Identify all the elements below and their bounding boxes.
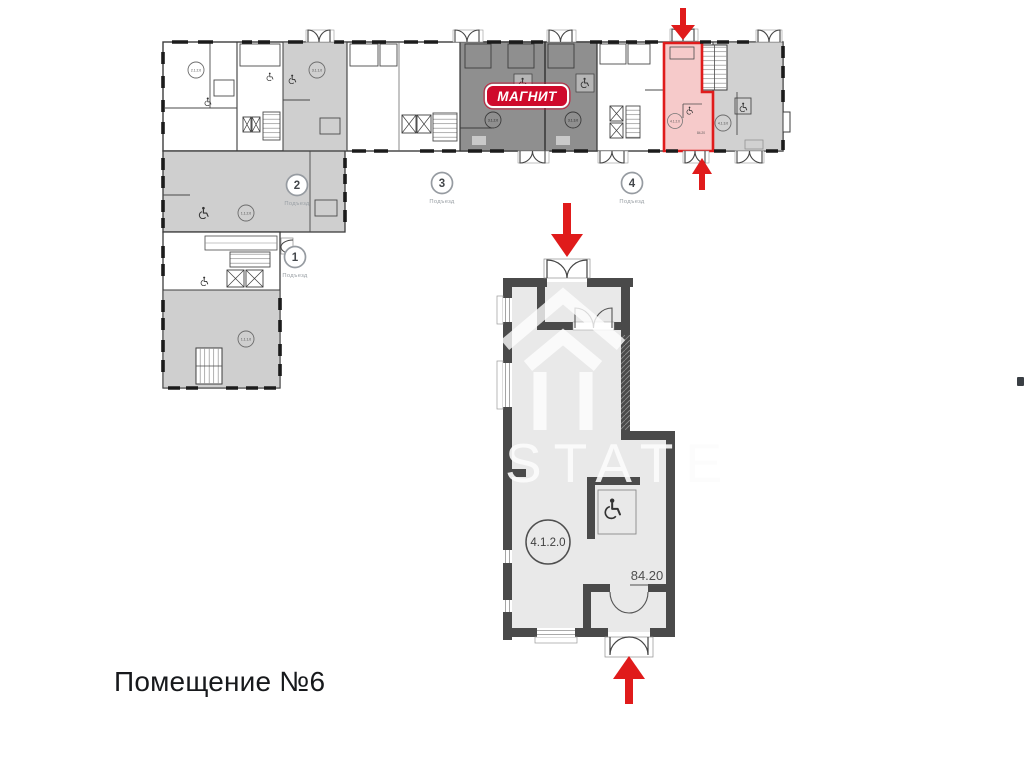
- svg-text:3.1.2.0: 3.1.2.0: [488, 118, 498, 122]
- watermark: STATE: [440, 240, 760, 500]
- svg-text:4: 4: [629, 178, 636, 190]
- svg-text:4.1.2.0: 4.1.2.0: [530, 537, 565, 549]
- svg-text:3: 3: [439, 178, 445, 190]
- stairwell-entrance-4: [702, 45, 727, 90]
- svg-text:84.20: 84.20: [631, 568, 664, 583]
- caption: Помещение №6: [114, 666, 325, 698]
- wing-vertical: [163, 151, 345, 388]
- svg-text:2: 2: [294, 180, 300, 192]
- svg-text:3.1.3.0: 3.1.3.0: [568, 118, 578, 122]
- entrance-1-badge: 1 Подъезд: [282, 247, 308, 280]
- window-bottom: [535, 628, 577, 643]
- cropped-ui-artifact: [1017, 377, 1024, 386]
- watermark-text: STATE: [505, 432, 734, 494]
- detail-entry-arrow-up: [613, 656, 645, 704]
- svg-text:84.20: 84.20: [697, 131, 705, 135]
- svg-text:1.1.2.0: 1.1.2.0: [241, 211, 251, 215]
- entrance-door-bottom: [605, 637, 653, 657]
- highlighted-unit-bottom-door: [683, 151, 709, 163]
- svg-text:1.1.1.0: 1.1.1.0: [241, 337, 251, 341]
- entrance-3-badge: 3 Подъезд: [429, 173, 455, 206]
- magnit-logo: МАГНИТ: [484, 83, 570, 109]
- svg-text:Подъезд: Подъезд: [429, 199, 455, 205]
- floorplan-image: 2.1.2.0 3.1.1.0 3.1.2.0: [0, 0, 1024, 768]
- svg-text:4.1.2.0: 4.1.2.0: [670, 119, 680, 123]
- svg-text:Подъезд: Подъезд: [284, 201, 310, 207]
- entrance-2-badge: 2 Подъезд: [284, 175, 310, 208]
- svg-text:3.1.1.0: 3.1.1.0: [312, 68, 322, 72]
- door-symbols-top: [306, 29, 782, 42]
- svg-text:4.1.3.0: 4.1.3.0: [718, 121, 728, 125]
- svg-text:Подъезд: Подъезд: [282, 273, 308, 279]
- watermark-house-logo: [505, 296, 621, 430]
- svg-text:МАГНИТ: МАГНИТ: [497, 89, 558, 104]
- svg-text:2.1.2.0: 2.1.2.0: [191, 68, 201, 72]
- svg-text:1: 1: [292, 252, 299, 264]
- area-label: 84.20: [630, 568, 664, 585]
